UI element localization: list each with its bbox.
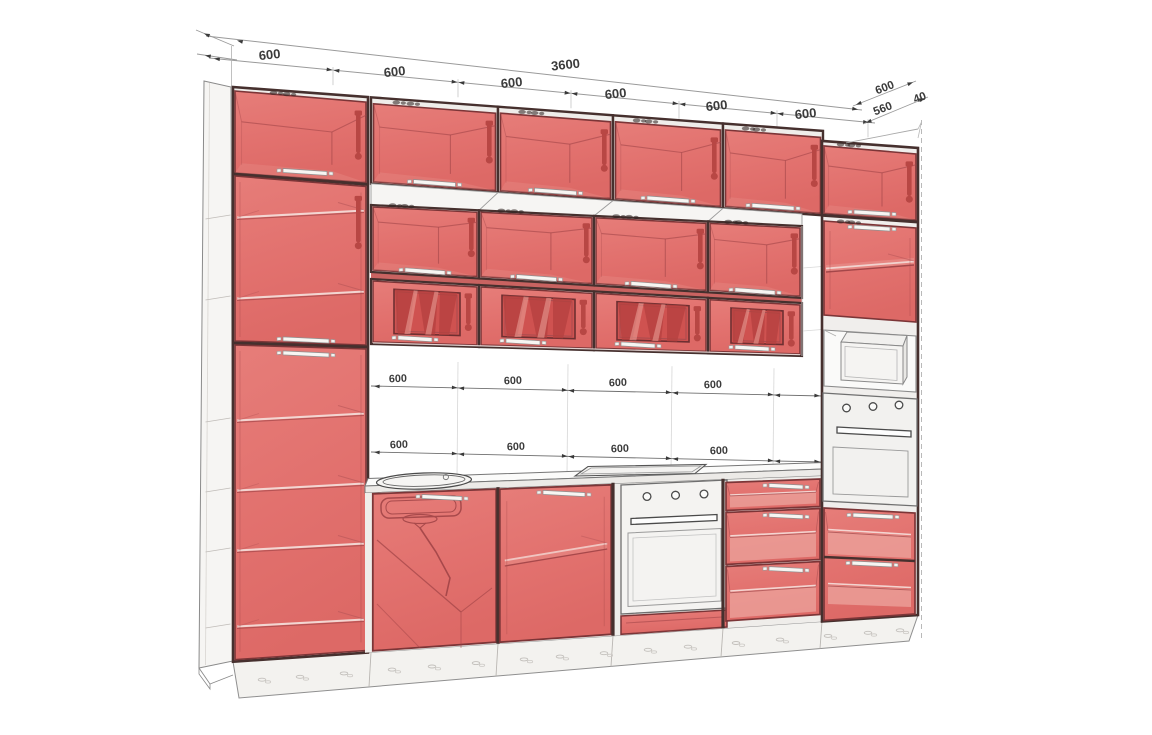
svg-text:600: 600: [609, 377, 627, 390]
svg-text:600: 600: [500, 74, 523, 91]
svg-text:600: 600: [704, 379, 722, 392]
svg-text:600: 600: [604, 85, 627, 102]
svg-text:600: 600: [611, 443, 629, 456]
svg-text:600: 600: [794, 105, 817, 122]
svg-text:600: 600: [258, 46, 281, 63]
svg-text:600: 600: [710, 445, 728, 458]
svg-text:600: 600: [383, 63, 406, 80]
svg-text:600: 600: [504, 375, 522, 388]
svg-text:600: 600: [389, 373, 407, 386]
svg-text:600: 600: [705, 97, 728, 114]
svg-text:3600: 3600: [550, 56, 580, 74]
svg-text:600: 600: [507, 441, 525, 454]
svg-text:600: 600: [390, 439, 408, 452]
